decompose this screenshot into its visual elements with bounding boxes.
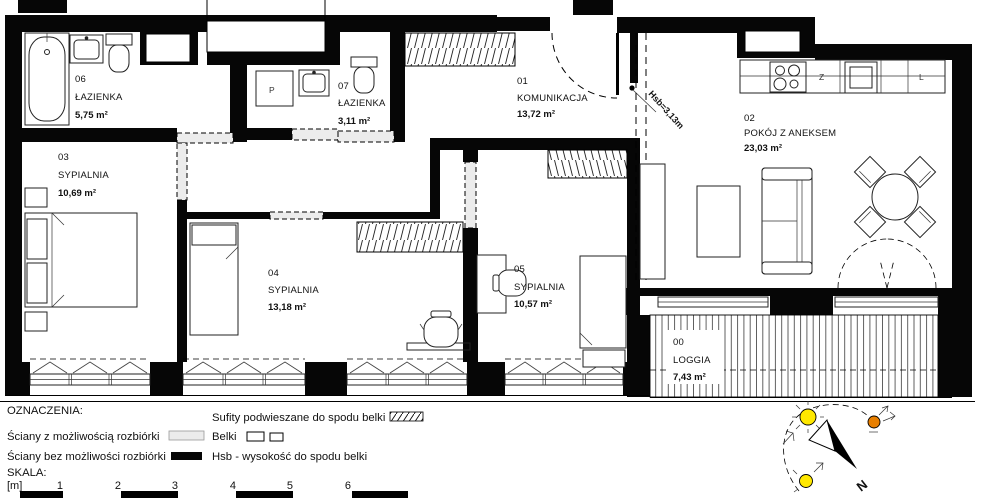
hsb-marker (629, 85, 634, 90)
toilet-07-bowl (354, 67, 374, 93)
room-05-name: SYPIALNIA (514, 282, 565, 293)
dining-set (854, 156, 935, 237)
legend-demolishable-swatch (169, 431, 204, 440)
living-room-furniture (640, 156, 936, 279)
room-05-area: 10,57 m² (514, 299, 552, 310)
scale-title: SKALA: (7, 467, 47, 479)
room-01-id: 01 (517, 76, 528, 87)
desk-chair (407, 311, 470, 350)
single-bed (580, 256, 626, 367)
scale-tick-1: 1 (57, 480, 63, 492)
scale-unit: [m] (7, 480, 22, 492)
kitchen-sink-label: Z (819, 72, 824, 82)
scale-bar: SKALA: [m] 1 2 3 4 5 6 (7, 467, 408, 498)
legend: OZNACZENIA: Ściany z możliwością rozbiór… (7, 405, 423, 463)
room-07-area: 3,11 m² (338, 116, 370, 127)
wardrobe-bedroom-05 (548, 150, 627, 178)
tv-cabinet (640, 164, 665, 279)
scale-segment (236, 491, 293, 498)
room-02-name: POKÓJ Z ANEKSEM (744, 128, 836, 139)
bathtub (25, 33, 69, 125)
fridge-label: L (919, 72, 924, 82)
scale-segment (20, 491, 63, 498)
legend-beams-label: Belki (212, 431, 237, 443)
double-bed (25, 213, 137, 307)
room-05-id: 05 (514, 264, 525, 275)
wardrobe-bedroom-04 (357, 222, 463, 252)
room-00-name: LOGGIA (673, 355, 711, 366)
legend-demolishable-label: Ściany z możliwością rozbiórki (7, 430, 160, 443)
toilet-06-tank (106, 34, 132, 45)
sunset-icon (868, 406, 895, 432)
nightstand (25, 188, 47, 207)
hsb-annotation: Hsb=3,13m (647, 89, 686, 131)
legend-beam-symbol (247, 432, 264, 441)
room-06-area: 5,75 m² (75, 110, 108, 121)
room-06-id: 06 (75, 74, 86, 85)
balcony-door-arc-left (838, 239, 887, 288)
dining-table (872, 174, 918, 220)
scale-segment (352, 491, 408, 498)
washer-label: P (269, 85, 275, 95)
scale-tick-4: 4 (230, 480, 236, 492)
room-03-id: 03 (58, 152, 69, 163)
north-needle: N (809, 420, 870, 494)
sofa (762, 168, 812, 274)
room-06-name: ŁAZIENKA (75, 92, 123, 103)
floor-plan-drawing: P Hsb=3,13m Z L (0, 0, 982, 500)
single-bed (190, 223, 238, 335)
room-07-name: ŁAZIENKA (338, 98, 386, 109)
legend-title: OZNACZENIA: (7, 405, 83, 417)
room-03-name: SYPIALNIA (58, 170, 109, 181)
sunrise-icon (793, 463, 823, 492)
scale-tick-5: 5 (287, 480, 293, 492)
room-03-area: 10,69 m² (58, 188, 96, 199)
room-02-id: 02 (744, 113, 755, 124)
legend-nondemolishable-label: Ściany bez możliwości rozbiórki (7, 450, 166, 463)
kitchen-counter: Z L (740, 60, 945, 93)
room-04-id: 04 (268, 268, 279, 279)
legend-hsb-label: Hsb - wysokość do spodu belki (212, 451, 367, 463)
legend-ceiling-label: Sufity podwieszane do spodu belki (212, 412, 385, 424)
legend-ceiling-swatch (390, 412, 423, 421)
room-02-area: 23,03 m² (744, 143, 782, 154)
entrance-door-arc (552, 33, 617, 98)
scale-tick-2: 2 (115, 480, 121, 492)
room-04-name: SYPIALNIA (268, 285, 319, 296)
bedroom-05-furniture (477, 255, 626, 367)
legend-nondemolishable-swatch (171, 452, 202, 460)
room-01-name: KOMUNIKACJA (517, 93, 588, 104)
room-00-area: 7,43 m² (673, 372, 706, 383)
scale-segment (121, 491, 178, 498)
toilet-06-bowl (109, 45, 129, 72)
scale-tick-6: 6 (345, 480, 351, 492)
nightstand (25, 312, 47, 331)
toilet-07-tank (351, 57, 377, 67)
compass-rose: N (783, 401, 895, 494)
legend-beam-symbol (270, 433, 283, 441)
room-04-area: 13,18 m² (268, 302, 306, 313)
balcony-door-arc-right (887, 239, 936, 288)
room-01-area: 13,72 m² (517, 109, 555, 120)
room-00-id: 00 (673, 337, 684, 348)
bedroom-03-furniture (25, 188, 137, 331)
room-07-id: 07 (338, 81, 349, 92)
north-label: N (854, 477, 871, 495)
floor-plan-page: P Hsb=3,13m Z L (0, 0, 982, 500)
scale-tick-3: 3 (172, 480, 178, 492)
coffee-table (697, 186, 740, 257)
wardrobe-hall (405, 33, 515, 66)
